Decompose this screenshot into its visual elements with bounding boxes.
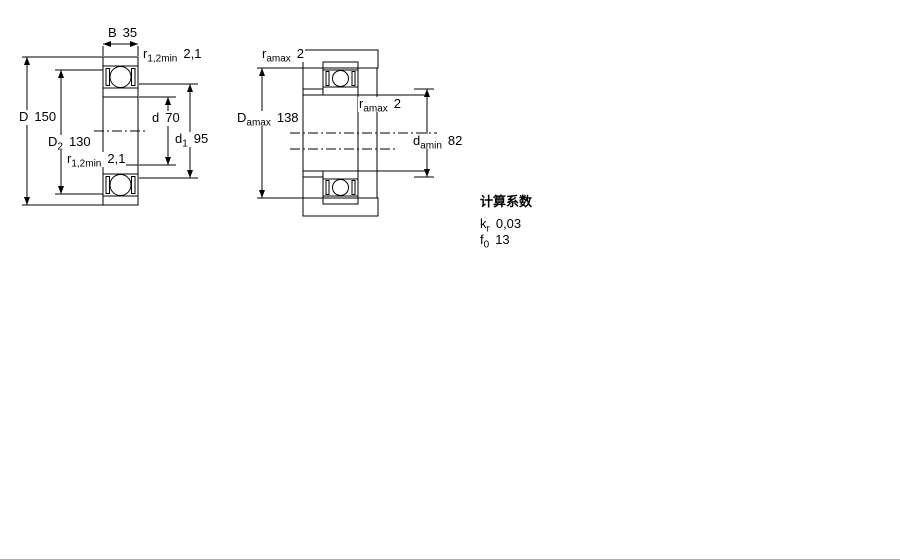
dim-base: d (152, 110, 159, 125)
dim-sub: 1 (182, 139, 188, 150)
factor-f0: f013 (479, 233, 511, 248)
bearing-drawings-svg (0, 0, 900, 560)
dim-shaft-fillet-ramax-label: ramax2 (358, 97, 402, 112)
dim-value: 82 (448, 133, 462, 148)
ball-icon (110, 175, 131, 196)
dim-sub: amax (266, 54, 290, 65)
dim-value: 35 (123, 25, 137, 40)
dim-value: 130 (69, 134, 91, 149)
dim-fillet-r12min-top-label: r1,2min2,1 (142, 47, 202, 62)
dim-sub: 2 (57, 142, 63, 153)
dim-outer-diameter-D-label: D150 (18, 110, 57, 125)
shield-right-icon (352, 72, 355, 86)
shield-left-icon (326, 72, 329, 86)
dim-value: 95 (194, 131, 208, 146)
dim-sub: amax (246, 118, 270, 129)
dim-value: 2,1 (107, 151, 125, 166)
factor-value: 0,03 (496, 216, 521, 231)
dim-bore-diameter-d-label: d70 (151, 111, 181, 126)
shield-left-icon (326, 181, 329, 195)
shield-left-icon (106, 69, 110, 86)
dim-sub: 1,2min (147, 54, 177, 65)
dim-sub: 1,2min (71, 159, 101, 170)
factor-sub: 0 (484, 240, 490, 251)
dim-value: 150 (34, 109, 56, 124)
ball-icon (110, 67, 131, 88)
dim-shoulder-diameter-d1-label: d195 (174, 132, 209, 147)
dim-fillet-r12min-bottom-label: r1,2min2,1 (66, 152, 126, 167)
ball-icon (333, 71, 349, 87)
dim-value: 70 (165, 110, 179, 125)
dim-sub: amax (363, 104, 387, 115)
dim-value: 2,1 (183, 46, 201, 61)
shield-right-icon (132, 69, 136, 86)
dim-value: 2 (297, 46, 304, 61)
dim-shaft-abutment-damin-label: damin82 (412, 134, 463, 149)
dim-base: D (237, 110, 246, 125)
bearing-datasheet-page: B35 r1,2min2,1 D150 D2130 r1,2min2,1 d70… (0, 0, 900, 560)
dim-housing-abutment-Damax-label: Damax138 (236, 111, 300, 126)
dim-value: 138 (277, 110, 299, 125)
factor-kr: kr0,03 (479, 217, 522, 232)
shield-right-icon (132, 177, 136, 194)
dim-base: B (108, 25, 117, 40)
factor-value: 13 (495, 232, 509, 247)
dim-base: D (19, 109, 28, 124)
dim-base: D (48, 134, 57, 149)
dim-sub: amin (420, 141, 442, 152)
dim-width-B-label: B35 (107, 26, 138, 41)
dim-housing-fillet-ramax-top-label: ramax2 (261, 47, 305, 62)
ball-icon (333, 180, 349, 196)
shield-right-icon (352, 181, 355, 195)
dim-recess-diameter-D2-label: D2130 (47, 135, 92, 150)
dim-value: 2 (394, 96, 401, 111)
calculation-factors-title: 计算系数 (479, 196, 533, 211)
shield-left-icon (106, 177, 110, 194)
abutment-dimensions-figure (257, 50, 437, 216)
